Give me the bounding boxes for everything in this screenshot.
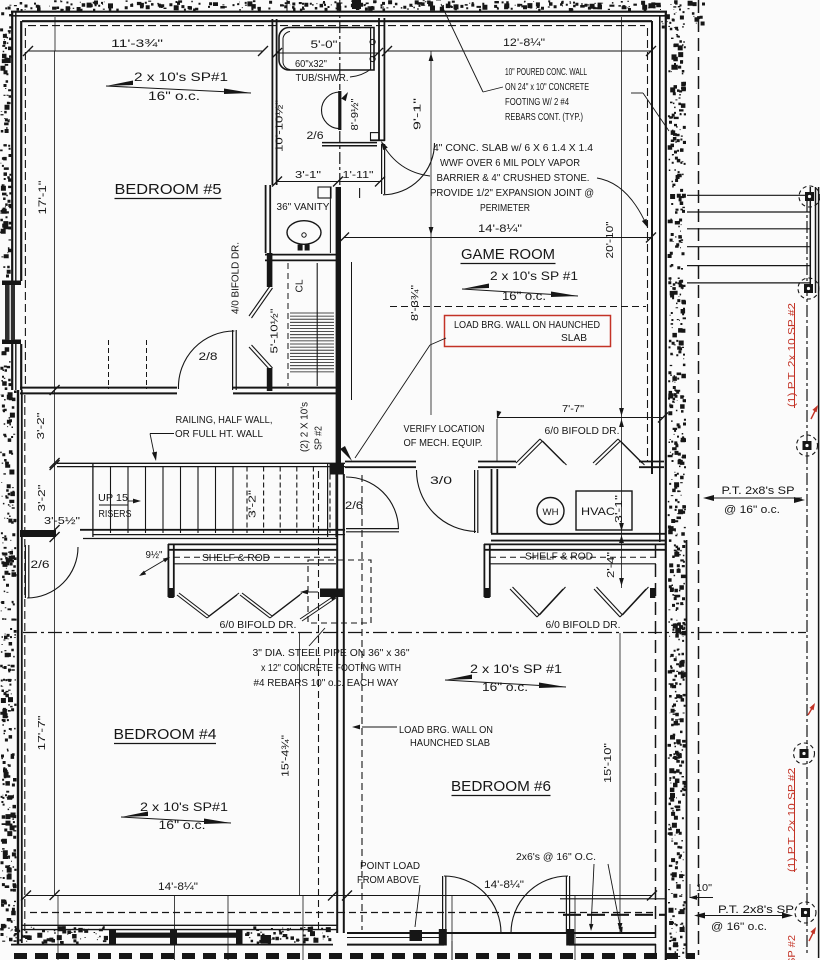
svg-text:PROVIDE 1/2" EXPANSION JOINT @: PROVIDE 1/2" EXPANSION JOINT @ [430, 188, 594, 199]
svg-text:3'-2": 3'-2" [36, 484, 48, 511]
svg-text:SHELF & ROD: SHELF & ROD [202, 552, 270, 564]
svg-text:@ 16" o.c.: @ 16" o.c. [711, 921, 767, 933]
svg-text:(1) P.T. 2x 10 SP #2: (1) P.T. 2x 10 SP #2 [786, 768, 798, 872]
svg-text:9'-1": 9'-1" [412, 98, 424, 130]
svg-text:x 12" CONCRETE FOOTING WITH: x 12" CONCRETE FOOTING WITH [261, 663, 401, 674]
svg-text:3'-2": 3'-2" [35, 412, 47, 439]
svg-text:4" CONC. SLAB w/ 6 X 6 1.4 X 1: 4" CONC. SLAB w/ 6 X 6 1.4 X 1.4 [433, 143, 593, 154]
svg-text:VERIFY LOCATION: VERIFY LOCATION [404, 424, 485, 435]
svg-text:CL: CL [294, 279, 306, 292]
svg-text:2 x 10's SP #1: 2 x 10's SP #1 [490, 271, 578, 283]
svg-text:TUB/SHWR.: TUB/SHWR. [296, 72, 349, 84]
svg-text:PERIMETER: PERIMETER [480, 203, 530, 214]
svg-text:2'-4": 2'-4" [605, 552, 617, 578]
svg-text:#4 REBARS 10" o.c. EACH WAY: #4 REBARS 10" o.c. EACH WAY [254, 678, 399, 689]
svg-text:8'-9½": 8'-9½" [349, 98, 361, 130]
svg-text:3/0: 3/0 [430, 475, 452, 487]
svg-text:11'-3¾": 11'-3¾" [111, 38, 163, 50]
svg-text:(2) 2 X 10's: (2) 2 X 10's [299, 402, 311, 452]
svg-text:10" POURED CONC. WALL: 10" POURED CONC. WALL [505, 67, 587, 78]
svg-text:2 x 10's SP#1: 2 x 10's SP#1 [134, 72, 228, 84]
svg-text:BEDROOM #5: BEDROOM #5 [115, 181, 222, 198]
svg-text:SP #2: SP #2 [786, 935, 798, 960]
svg-text:1'-11": 1'-11" [343, 169, 374, 181]
svg-text:3'-1": 3'-1" [295, 169, 321, 181]
svg-text:6/0 BIFOLD DR.: 6/0 BIFOLD DR. [220, 619, 297, 631]
svg-text:15'-10": 15'-10" [602, 743, 614, 783]
svg-text:5'-10½": 5'-10½" [269, 308, 281, 353]
svg-text:@ 16" o.c.: @ 16" o.c. [724, 504, 780, 516]
svg-text:6/0 BIFOLD DR.: 6/0 BIFOLD DR. [546, 619, 621, 631]
svg-text:7'-7": 7'-7" [562, 403, 584, 415]
svg-text:2 x 10's SP #1: 2 x 10's SP #1 [470, 664, 562, 676]
svg-text:BEDROOM #6: BEDROOM #6 [451, 778, 551, 795]
svg-text:UP 15: UP 15 [98, 492, 128, 504]
svg-text:HVAC: HVAC [581, 506, 615, 518]
svg-text:WWF OVER 6 MIL POLY VAPOR: WWF OVER 6 MIL POLY VAPOR [440, 158, 580, 169]
svg-text:12'-8¼": 12'-8¼" [503, 37, 545, 49]
svg-text:60"x32": 60"x32" [295, 58, 327, 70]
svg-text:SLAB: SLAB [561, 333, 587, 344]
svg-text:P.T. 2x8's SP: P.T. 2x8's SP [722, 485, 795, 497]
svg-text:10": 10" [696, 882, 712, 894]
svg-text:2/6: 2/6 [307, 130, 324, 142]
svg-text:WH: WH [543, 507, 559, 518]
svg-text:POINT LOAD: POINT LOAD [360, 860, 420, 872]
svg-text:REBARS CONT. (TYP.): REBARS CONT. (TYP.) [505, 112, 583, 123]
svg-text:3" DIA. STEEL PIPE ON 36" x 36: 3" DIA. STEEL PIPE ON 36" x 36" [253, 648, 410, 659]
svg-text:3'-5½": 3'-5½" [44, 515, 80, 527]
svg-text:FOOTING W/ 2 #4: FOOTING W/ 2 #4 [505, 97, 569, 108]
svg-text:15'-4¾": 15'-4¾" [280, 735, 292, 777]
svg-text:BEDROOM #4: BEDROOM #4 [114, 726, 217, 743]
svg-text:14'-8¼": 14'-8¼" [478, 223, 522, 235]
svg-text:2x6's @ 16" O.C.: 2x6's @ 16" O.C. [516, 851, 596, 863]
svg-text:20'-10": 20'-10" [604, 221, 616, 258]
svg-text:2/8: 2/8 [199, 351, 218, 363]
svg-text:2/6: 2/6 [345, 500, 363, 512]
svg-text:17'-1": 17'-1" [37, 180, 49, 214]
svg-text:3'-2": 3'-2" [247, 490, 259, 518]
svg-text:36" VANITY: 36" VANITY [277, 201, 330, 213]
svg-text:9½": 9½" [146, 549, 163, 561]
svg-text:(1) P.T. 2x 10 SP #2: (1) P.T. 2x 10 SP #2 [786, 303, 798, 407]
svg-text:6/0 BIFOLD DR.: 6/0 BIFOLD DR. [545, 425, 620, 437]
svg-text:14'-8¼": 14'-8¼" [484, 879, 524, 891]
svg-text:OF MECH. EQUIP.: OF MECH. EQUIP. [404, 438, 483, 449]
svg-text:17'-7": 17'-7" [36, 715, 48, 750]
svg-text:FROM ABOVE: FROM ABOVE [357, 874, 419, 886]
svg-text:4/0 BIFOLD DR.: 4/0 BIFOLD DR. [230, 242, 242, 314]
svg-text:2/6: 2/6 [31, 559, 50, 571]
svg-text:16" o.c.: 16" o.c. [148, 91, 200, 103]
svg-text:14'-8¼": 14'-8¼" [158, 881, 198, 893]
svg-text:16" o.c.: 16" o.c. [159, 820, 206, 832]
svg-text:RAILING, HALF WALL,: RAILING, HALF WALL, [176, 415, 273, 426]
svg-text:BARRIER & 4" CRUSHED STONE.: BARRIER & 4" CRUSHED STONE. [437, 173, 590, 184]
svg-text:HAUNCHED SLAB: HAUNCHED SLAB [410, 738, 490, 749]
svg-text:8'-3¾": 8'-3¾" [409, 285, 421, 321]
svg-text:RISERS: RISERS [99, 508, 132, 520]
svg-text:SP #2: SP #2 [313, 426, 325, 450]
svg-text:ON 24" x 10" CONCRETE: ON 24" x 10" CONCRETE [505, 82, 589, 93]
svg-text:OR FULL HT. WALL: OR FULL HT. WALL [175, 429, 263, 440]
svg-text:5'-0": 5'-0" [311, 39, 338, 51]
svg-text:3'-1": 3'-1" [613, 495, 625, 523]
svg-text:10'-10½": 10'-10½" [274, 100, 286, 152]
svg-text:LOAD BRG. WALL ON HAUNCHED: LOAD BRG. WALL ON HAUNCHED [454, 320, 600, 331]
svg-text:LOAD BRG. WALL ON: LOAD BRG. WALL ON [399, 725, 493, 736]
svg-text:2 x 10's SP#1: 2 x 10's SP#1 [140, 802, 228, 814]
svg-text:GAME ROOM: GAME ROOM [461, 246, 555, 263]
svg-text:SHELF & ROD: SHELF & ROD [525, 551, 593, 563]
